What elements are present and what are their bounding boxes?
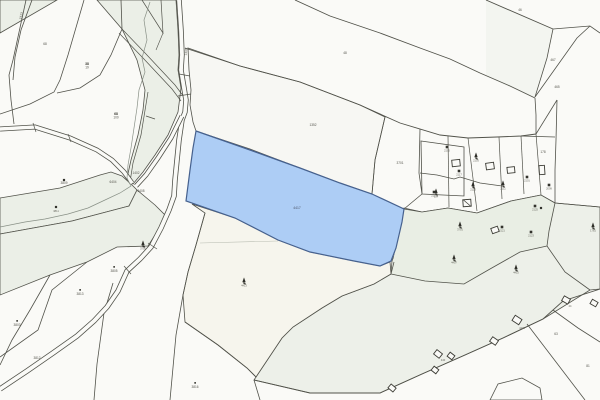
svg-text:3816: 3816: [191, 385, 198, 389]
svg-text:4403: 4403: [519, 326, 525, 330]
svg-text:3811: 3811: [53, 209, 59, 213]
svg-text:63: 63: [554, 332, 558, 336]
svg-text:1352: 1352: [309, 123, 316, 127]
svg-text:2099: 2099: [546, 187, 552, 191]
svg-text:2111: 2111: [500, 187, 506, 191]
svg-text:154: 154: [434, 195, 439, 199]
svg-text:2123: 2123: [528, 234, 534, 238]
svg-text:1408: 1408: [184, 48, 189, 56]
svg-text:440: 440: [441, 358, 446, 362]
svg-text:2117: 2117: [456, 173, 462, 177]
svg-text:465: 465: [554, 85, 560, 89]
svg-text:2105: 2105: [444, 149, 450, 153]
svg-text:4417: 4417: [293, 206, 301, 210]
svg-text:81: 81: [586, 364, 590, 368]
svg-text:3812: 3812: [33, 356, 40, 360]
svg-text:68: 68: [43, 42, 47, 46]
svg-text:4415: 4415: [513, 271, 519, 275]
svg-text:48: 48: [343, 51, 347, 55]
svg-text:178: 178: [540, 150, 546, 154]
svg-text:2121: 2121: [499, 229, 505, 233]
svg-text:3805: 3805: [110, 269, 117, 273]
svg-text:3795: 3795: [140, 247, 146, 251]
svg-text:100: 100: [113, 116, 119, 120]
svg-text:19: 19: [85, 66, 89, 70]
svg-text:3791: 3791: [457, 228, 463, 232]
svg-text:46: 46: [518, 8, 522, 12]
svg-text:4407: 4407: [451, 261, 457, 265]
svg-text:3803: 3803: [13, 323, 20, 327]
svg-text:2125: 2125: [532, 208, 538, 212]
svg-text:3701: 3701: [396, 161, 403, 165]
svg-text:6404: 6404: [109, 180, 116, 184]
svg-text:2101: 2101: [524, 179, 530, 183]
svg-text:6408: 6408: [137, 189, 144, 193]
svg-text:3809: 3809: [60, 181, 67, 185]
svg-text:2113: 2113: [470, 188, 476, 192]
svg-text:3813: 3813: [76, 292, 83, 296]
svg-text:1781: 1781: [590, 229, 596, 233]
svg-text:1402: 1402: [132, 171, 139, 175]
svg-text:467: 467: [550, 58, 556, 62]
svg-text:2103: 2103: [473, 159, 479, 163]
svg-text:4413: 4413: [241, 284, 247, 288]
